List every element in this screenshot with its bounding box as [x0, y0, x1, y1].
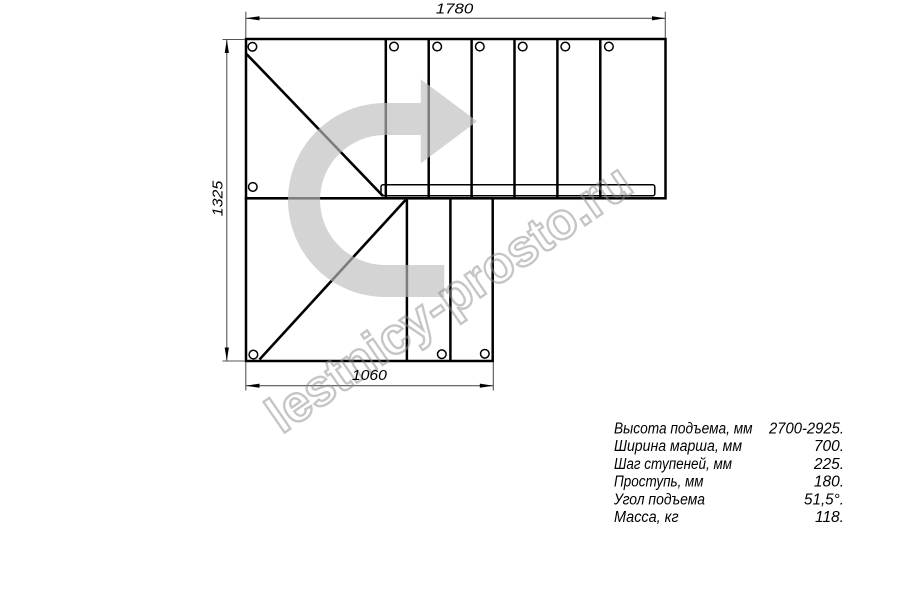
svg-text:700.: 700.: [814, 438, 844, 455]
svg-text:Шаг ступеней, мм: Шаг ступеней, мм: [614, 456, 732, 473]
svg-text:1060: 1060: [352, 367, 388, 384]
svg-text:1780: 1780: [436, 1, 474, 18]
svg-text:Высота подъема, мм: Высота подъема, мм: [614, 420, 753, 437]
svg-text:180.: 180.: [814, 474, 844, 491]
svg-text:51,5°.: 51,5°.: [804, 491, 844, 508]
svg-text:Проступь, мм: Проступь, мм: [614, 474, 704, 491]
svg-text:Масса, кг: Масса, кг: [614, 509, 679, 526]
svg-text:118.: 118.: [815, 509, 844, 526]
svg-text:225.: 225.: [813, 456, 844, 473]
svg-text:1325: 1325: [209, 180, 226, 216]
svg-text:Угол подъема: Угол подъема: [613, 491, 705, 508]
svg-text:2700-2925.: 2700-2925.: [768, 420, 844, 437]
svg-text:Ширина марша, мм: Ширина марша, мм: [614, 438, 742, 455]
